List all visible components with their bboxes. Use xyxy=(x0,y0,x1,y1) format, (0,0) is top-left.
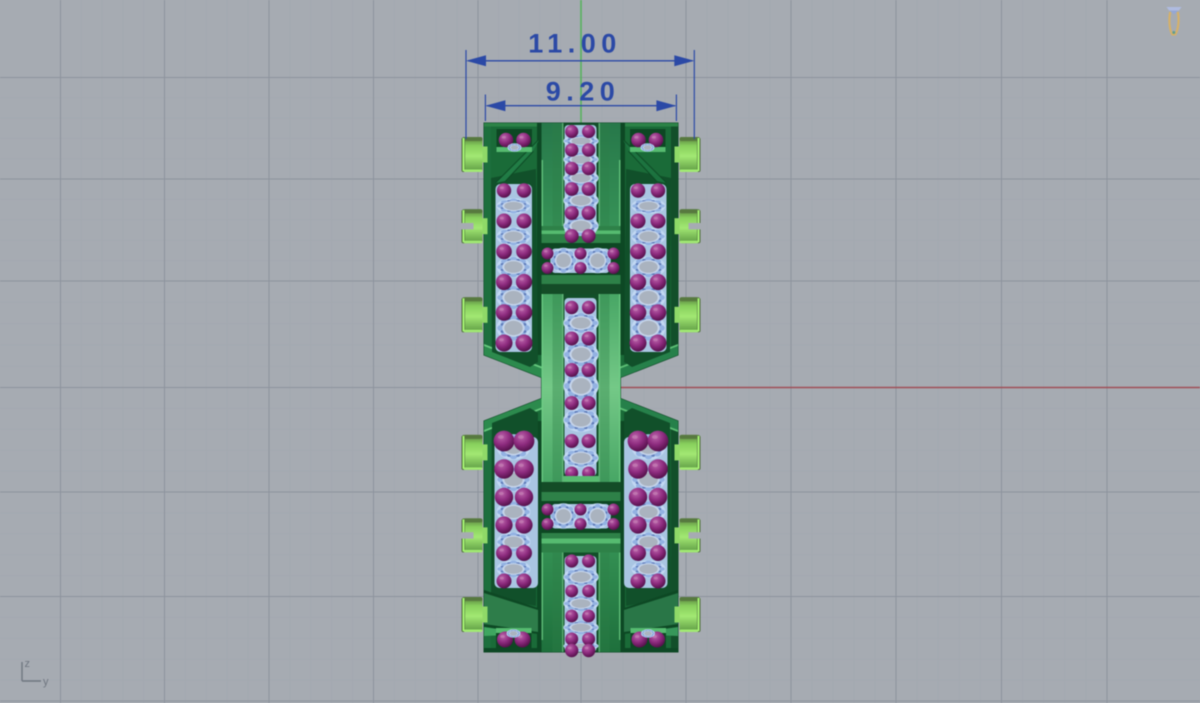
svg-text:9.20: 9.20 xyxy=(546,77,621,107)
svg-text:y: y xyxy=(43,676,49,688)
svg-text:z: z xyxy=(25,658,31,670)
svg-text:11.00: 11.00 xyxy=(528,29,622,59)
